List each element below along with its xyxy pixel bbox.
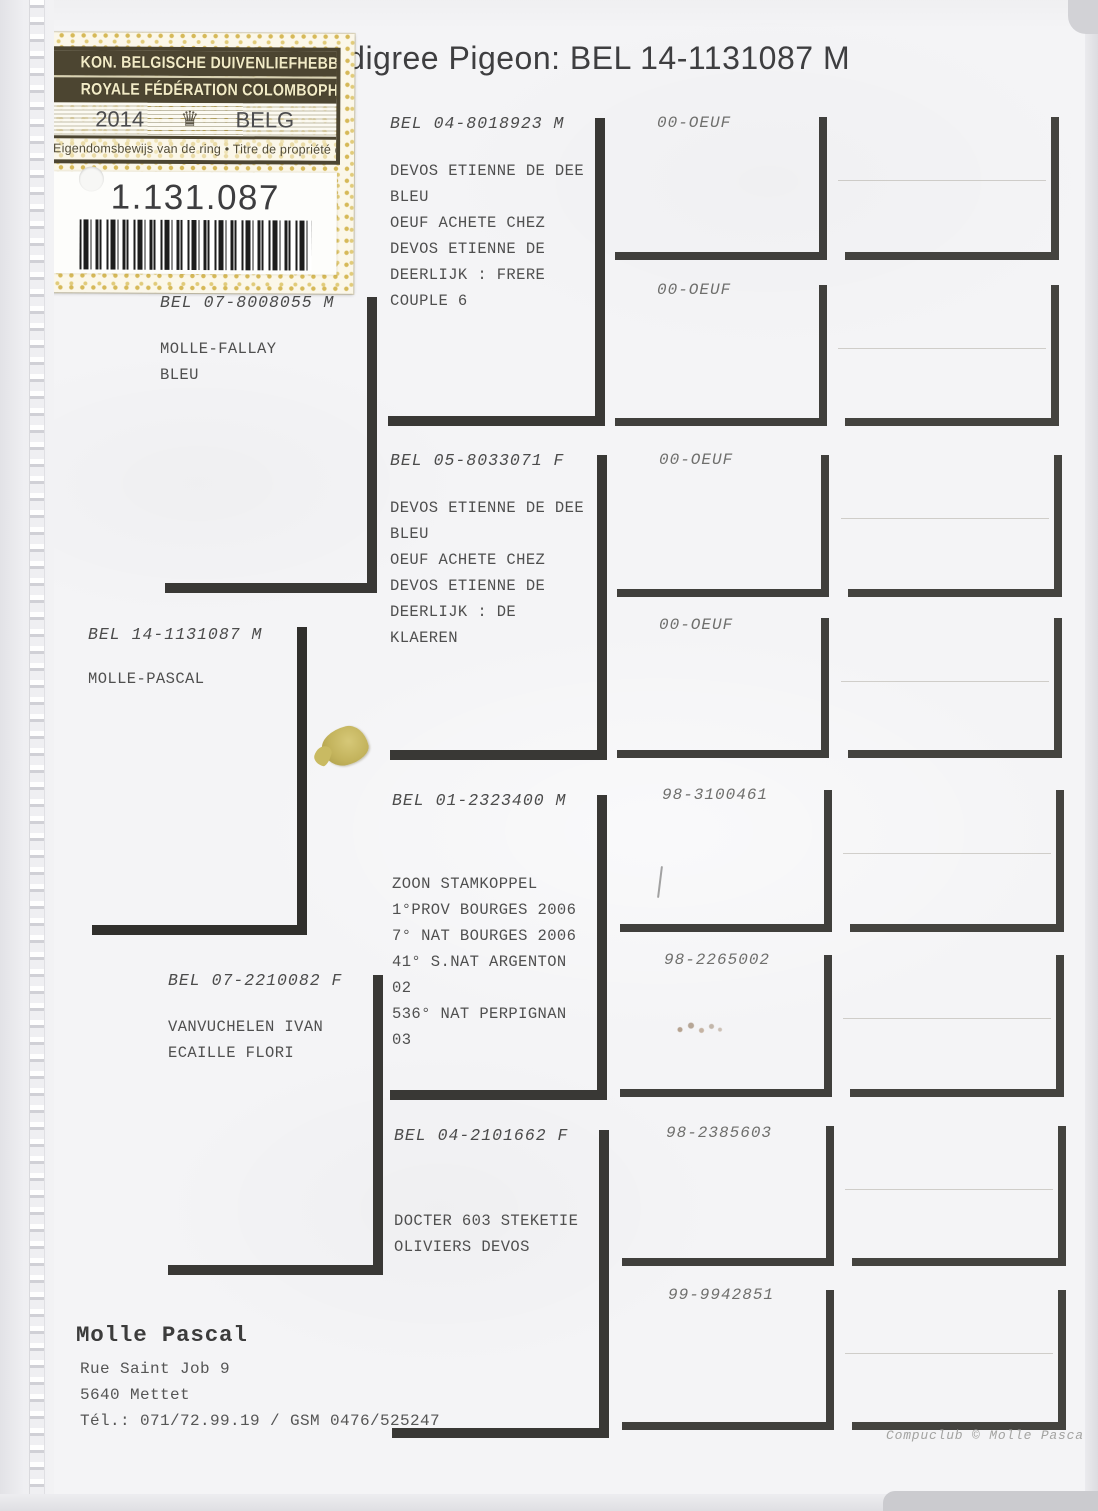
software-credit: Compuclub © Molle Pascal (886, 1428, 1092, 1443)
ring-label-ggp-3: 00-OEUF (659, 451, 733, 469)
ring-label-ggp-1: 00-OEUF (657, 114, 731, 132)
crown-icon: ♛ (180, 109, 199, 130)
bracket-gggp-7 (852, 1126, 1066, 1266)
sticker-frame: KON. BELGISCHE DUIVENLIEFHEBBERSBOND ROY… (49, 46, 341, 165)
federation-name-french: ROYALE FÉDÉRATION COLOMBOPHILE BELGE (53, 77, 336, 103)
owner-name: Molle Pascal (76, 1322, 248, 1348)
ring-label-subject: BEL 14-1131087 M (88, 625, 262, 644)
ring-label-ggp-6: 98-2265002 (664, 951, 770, 969)
bracket-ggp-4 (617, 618, 829, 758)
bracket-ggp-7 (622, 1126, 834, 1266)
ring-label-grandparent-1: BEL 04-8018923 M (390, 114, 564, 133)
ring-label-grandparent-4: BEL 04-2101662 F (394, 1126, 568, 1145)
bird-notes-grandparent-2: DEVOS ETIENNE DE DEE BLEU OEUF ACHETE CH… (390, 495, 584, 651)
bracket-gggp-2 (845, 285, 1059, 426)
ownership-title: Eigendomsbewijs van de ring • Titre de p… (53, 135, 336, 160)
plastic-sleeve-edge (0, 0, 54, 1511)
country-code: BELG (235, 107, 294, 133)
bracket-ggp-1 (615, 117, 827, 260)
bird-notes-sire: MOLLE-FALLAY BLEU (160, 336, 276, 388)
bracket-gggp-3 (848, 455, 1062, 597)
bracket-ggp-3 (617, 455, 829, 597)
bracket-ggp-2 (615, 285, 827, 426)
scan-corner-top-right (1068, 0, 1098, 34)
owner-address: Rue Saint Job 9 5640 Mettet Tél.: 071/72… (80, 1356, 440, 1434)
bracket-gggp-8 (852, 1290, 1066, 1430)
scanned-pedigree-document: Pedigree Pigeon: BEL 14-1131087 M KON. B… (0, 0, 1098, 1511)
tape-fragment (318, 722, 372, 770)
bracket-ggp-8 (622, 1290, 834, 1430)
federation-name-dutch: KON. BELGISCHE DUIVENLIEFHEBBERSBOND (53, 50, 336, 76)
bird-notes-grandparent-4: DOCTER 603 STEKETIE OLIVIERS DEVOS (394, 1208, 578, 1260)
ring-label-ggp-7: 98-2385603 (666, 1124, 772, 1142)
ring-barcode (79, 219, 311, 270)
ring-label-sire: BEL 07-8008055 M (160, 293, 334, 312)
ring-year: 2014 (95, 106, 144, 132)
bird-notes-grandparent-1: DEVOS ETIENNE DE DEE BLEU OEUF ACHETE CH… (390, 158, 584, 314)
bracket-ggp-5 (620, 790, 832, 932)
hole-punch (79, 166, 104, 191)
ring-label-ggp-4: 00-OEUF (659, 616, 733, 634)
ring-label-grandparent-2: BEL 05-8033071 F (390, 451, 564, 470)
ink-smudge (674, 1020, 724, 1036)
bracket-gggp-5 (850, 790, 1064, 932)
ring-ownership-sticker: KON. BELGISCHE DUIVENLIEFHEBBERSBOND ROY… (35, 32, 354, 294)
bird-notes-dam: VANVUCHELEN IVAN ECAILLE FLORI (168, 1014, 323, 1066)
bird-notes-grandparent-3: ZOON STAMKOPPEL 1°PROV BOURGES 2006 7° N… (392, 871, 576, 1053)
ring-label-ggp-5: 98-3100461 (662, 786, 768, 804)
ring-label-ggp-2: 00-OEUF (657, 281, 731, 299)
bird-notes-subject: MOLLE-PASCAL (88, 666, 204, 692)
bracket-gggp-4 (848, 618, 1062, 758)
page-title: Pedigree Pigeon: BEL 14-1131087 M (307, 40, 850, 77)
scan-corner-bottom-right (883, 1491, 1098, 1511)
ring-label-dam: BEL 07-2210082 F (168, 971, 342, 990)
bracket-gggp-1 (845, 117, 1059, 260)
ring-label-grandparent-3: BEL 01-2323400 M (392, 791, 566, 810)
scan-edge-right (1085, 0, 1098, 1511)
ring-label-ggp-8: 99-9942851 (668, 1286, 774, 1304)
bracket-gggp-6 (850, 955, 1064, 1097)
bracket-ggp-6 (620, 955, 832, 1097)
year-country-row: 2014 ♛ BELG (53, 102, 336, 136)
